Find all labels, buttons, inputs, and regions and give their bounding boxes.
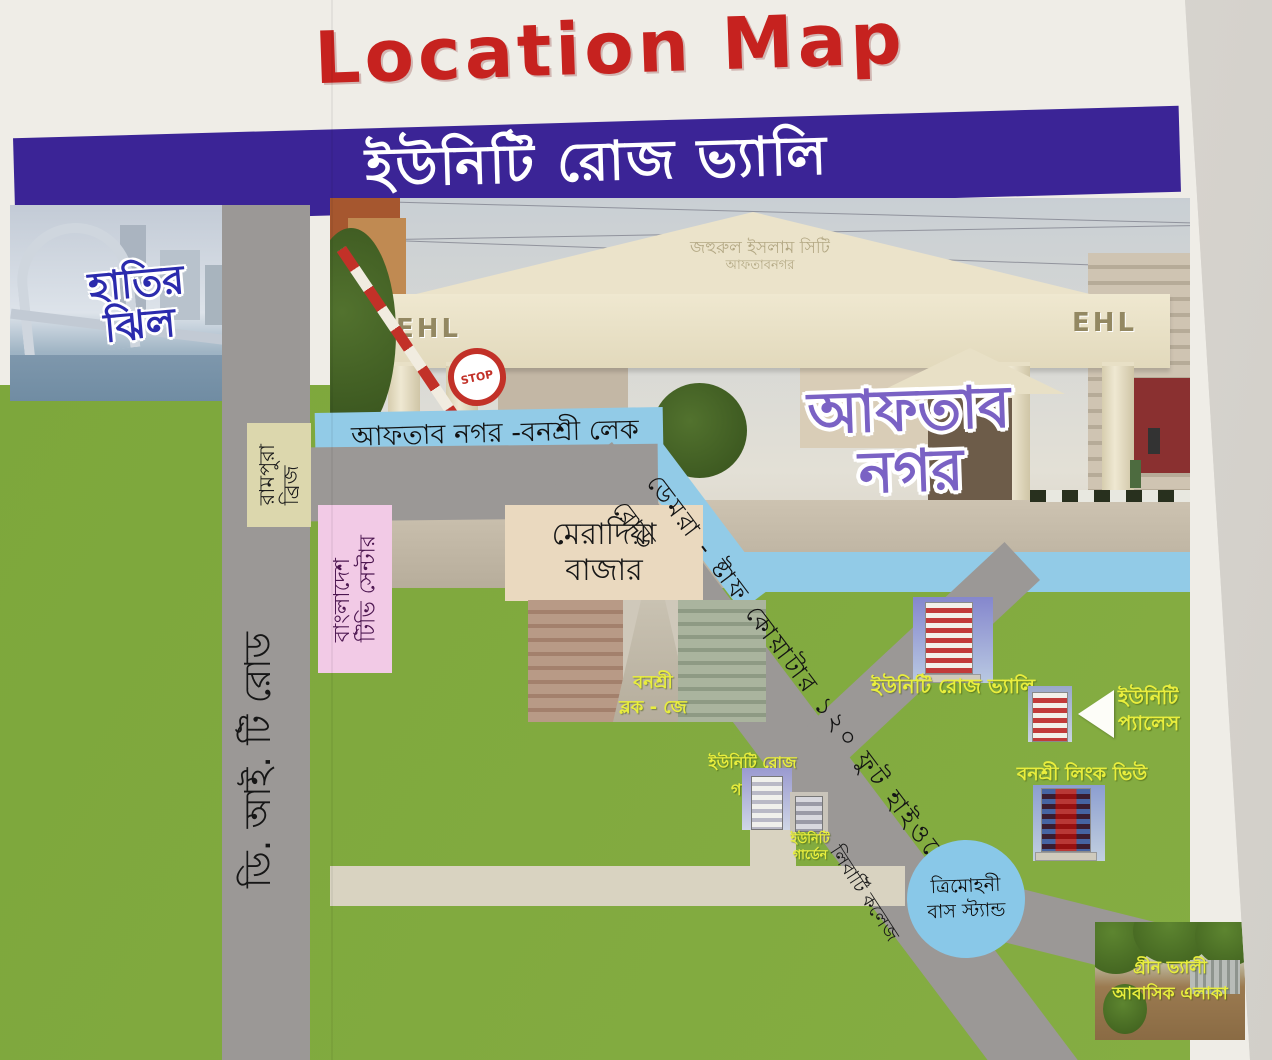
blockj-label: বনশ্রী ব্লক - জে xyxy=(598,670,708,720)
person-silhouette xyxy=(1130,460,1141,488)
btv-center-label: বাংলাদেশ টিভি সেন্টার xyxy=(318,505,392,673)
poster-fold-line xyxy=(331,0,333,1060)
hatirjheel-label: হাতির ঝিল xyxy=(55,256,222,354)
green-area-photo: গ্রীন ভ্যালী আবাসিক এলাকা xyxy=(1095,922,1245,1040)
garden-label: ইউনিটি গার্ডেন xyxy=(778,832,842,865)
hatirjheel-photo: হাতির ঝিল xyxy=(10,205,246,401)
building-tower xyxy=(925,602,981,683)
ehl-logo-right: EHL xyxy=(1072,308,1137,338)
link-view-building-image xyxy=(1033,785,1105,861)
rose-valley-label: ইউনিটি রোজ ভ্যালি xyxy=(868,672,1038,705)
palace-building-image xyxy=(1028,686,1072,742)
dit-road-label: ডি. আই. টি রোড xyxy=(238,468,284,888)
garden-building-image xyxy=(790,792,828,832)
tower-facade xyxy=(751,776,783,830)
page-title: Location Map xyxy=(259,0,962,102)
building-tower xyxy=(1041,788,1097,861)
tower-facade xyxy=(1041,788,1091,852)
location-map-poster-photo: Location Map ইউনিটি রোজ ভ্যালি হাতির ঝিল xyxy=(0,0,1272,1060)
tower-facade xyxy=(925,602,973,674)
tower-base xyxy=(1035,852,1097,861)
tower-facade xyxy=(795,796,823,832)
lake-label: আফতাব নগর -বনশ্রী লেক xyxy=(329,409,660,463)
palace-label: ইউনিটি প্যালেস xyxy=(1118,684,1208,736)
minor-road-horizontal xyxy=(330,866,905,906)
palace-arrow-icon xyxy=(1078,690,1114,738)
person-silhouette xyxy=(1148,428,1160,454)
tower-facade xyxy=(1032,692,1068,742)
rose-valley-building-image xyxy=(913,597,993,683)
rose-garden-building-image xyxy=(742,768,792,830)
lake-water-icon xyxy=(10,355,246,401)
aftabnagar-area-label: আফতাব নগর xyxy=(758,375,1062,507)
green-area-label: গ্রীন ভ্যালী আবাসিক এলাকা xyxy=(1095,956,1245,1007)
poster-sheet: Location Map ইউনিটি রোজ ভ্যালি হাতির ঝিল xyxy=(0,0,1272,1060)
gate-sign: জহুরুল ইসলাম সিটি আফতাবনগর xyxy=(580,238,940,274)
aftabnagar-gate-photo: জহুরুল ইসলাম সিটি আফতাবনগর EHL EHL STOP … xyxy=(330,198,1190,588)
